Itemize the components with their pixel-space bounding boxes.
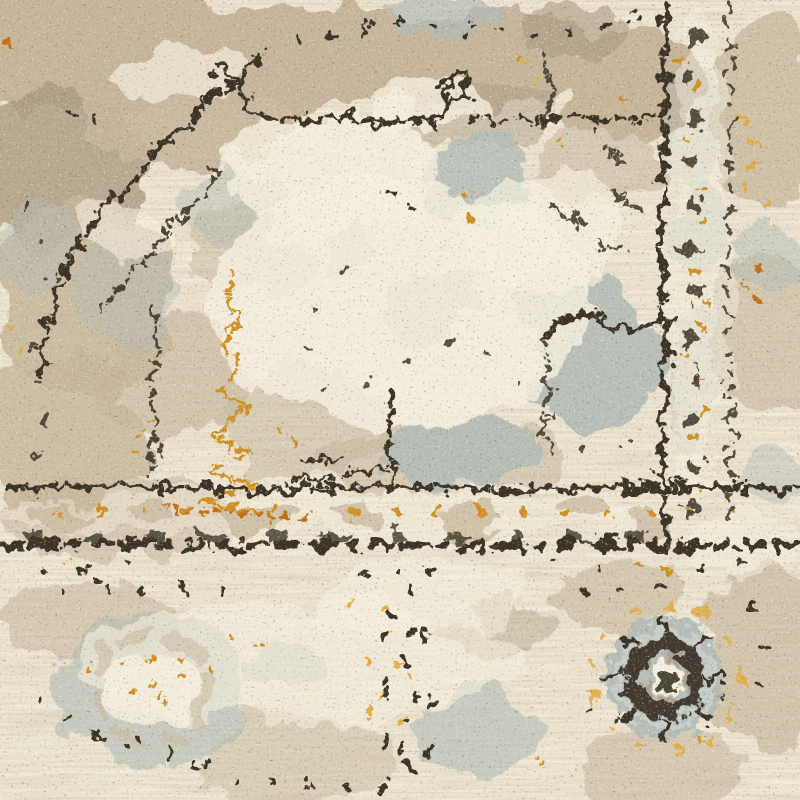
rug-grain-overlay xyxy=(0,0,800,800)
rug-photo xyxy=(0,0,800,800)
rug-photo-canvas xyxy=(0,0,800,800)
